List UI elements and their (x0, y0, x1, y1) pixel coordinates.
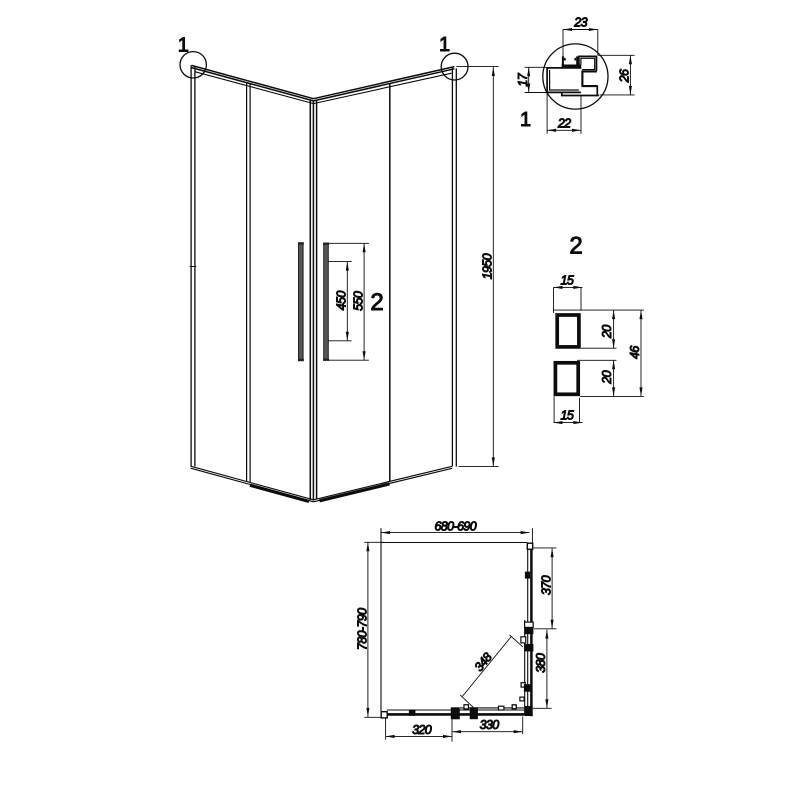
svg-text:370: 370 (539, 575, 553, 595)
svg-text:1: 1 (178, 34, 189, 56)
svg-text:348: 348 (472, 650, 495, 674)
svg-text:26: 26 (618, 69, 632, 83)
svg-text:22: 22 (557, 117, 571, 131)
svg-text:2: 2 (370, 289, 383, 316)
svg-text:780-790: 780-790 (355, 608, 369, 650)
svg-text:23: 23 (573, 16, 587, 30)
svg-text:15: 15 (561, 409, 574, 423)
svg-text:680-690: 680-690 (434, 520, 476, 534)
svg-text:2: 2 (569, 233, 582, 260)
svg-text:46: 46 (628, 346, 642, 359)
svg-text:15: 15 (561, 273, 574, 287)
svg-text:550: 550 (352, 291, 366, 311)
svg-text:20: 20 (600, 370, 614, 384)
svg-text:17: 17 (516, 72, 530, 86)
svg-text:380: 380 (534, 653, 548, 673)
svg-text:1: 1 (439, 34, 450, 56)
svg-text:330: 330 (480, 718, 500, 732)
svg-text:1950: 1950 (481, 253, 495, 279)
svg-text:20: 20 (600, 325, 614, 339)
svg-text:320: 320 (412, 723, 432, 737)
svg-text:450: 450 (334, 291, 348, 311)
svg-text:1: 1 (520, 109, 531, 131)
